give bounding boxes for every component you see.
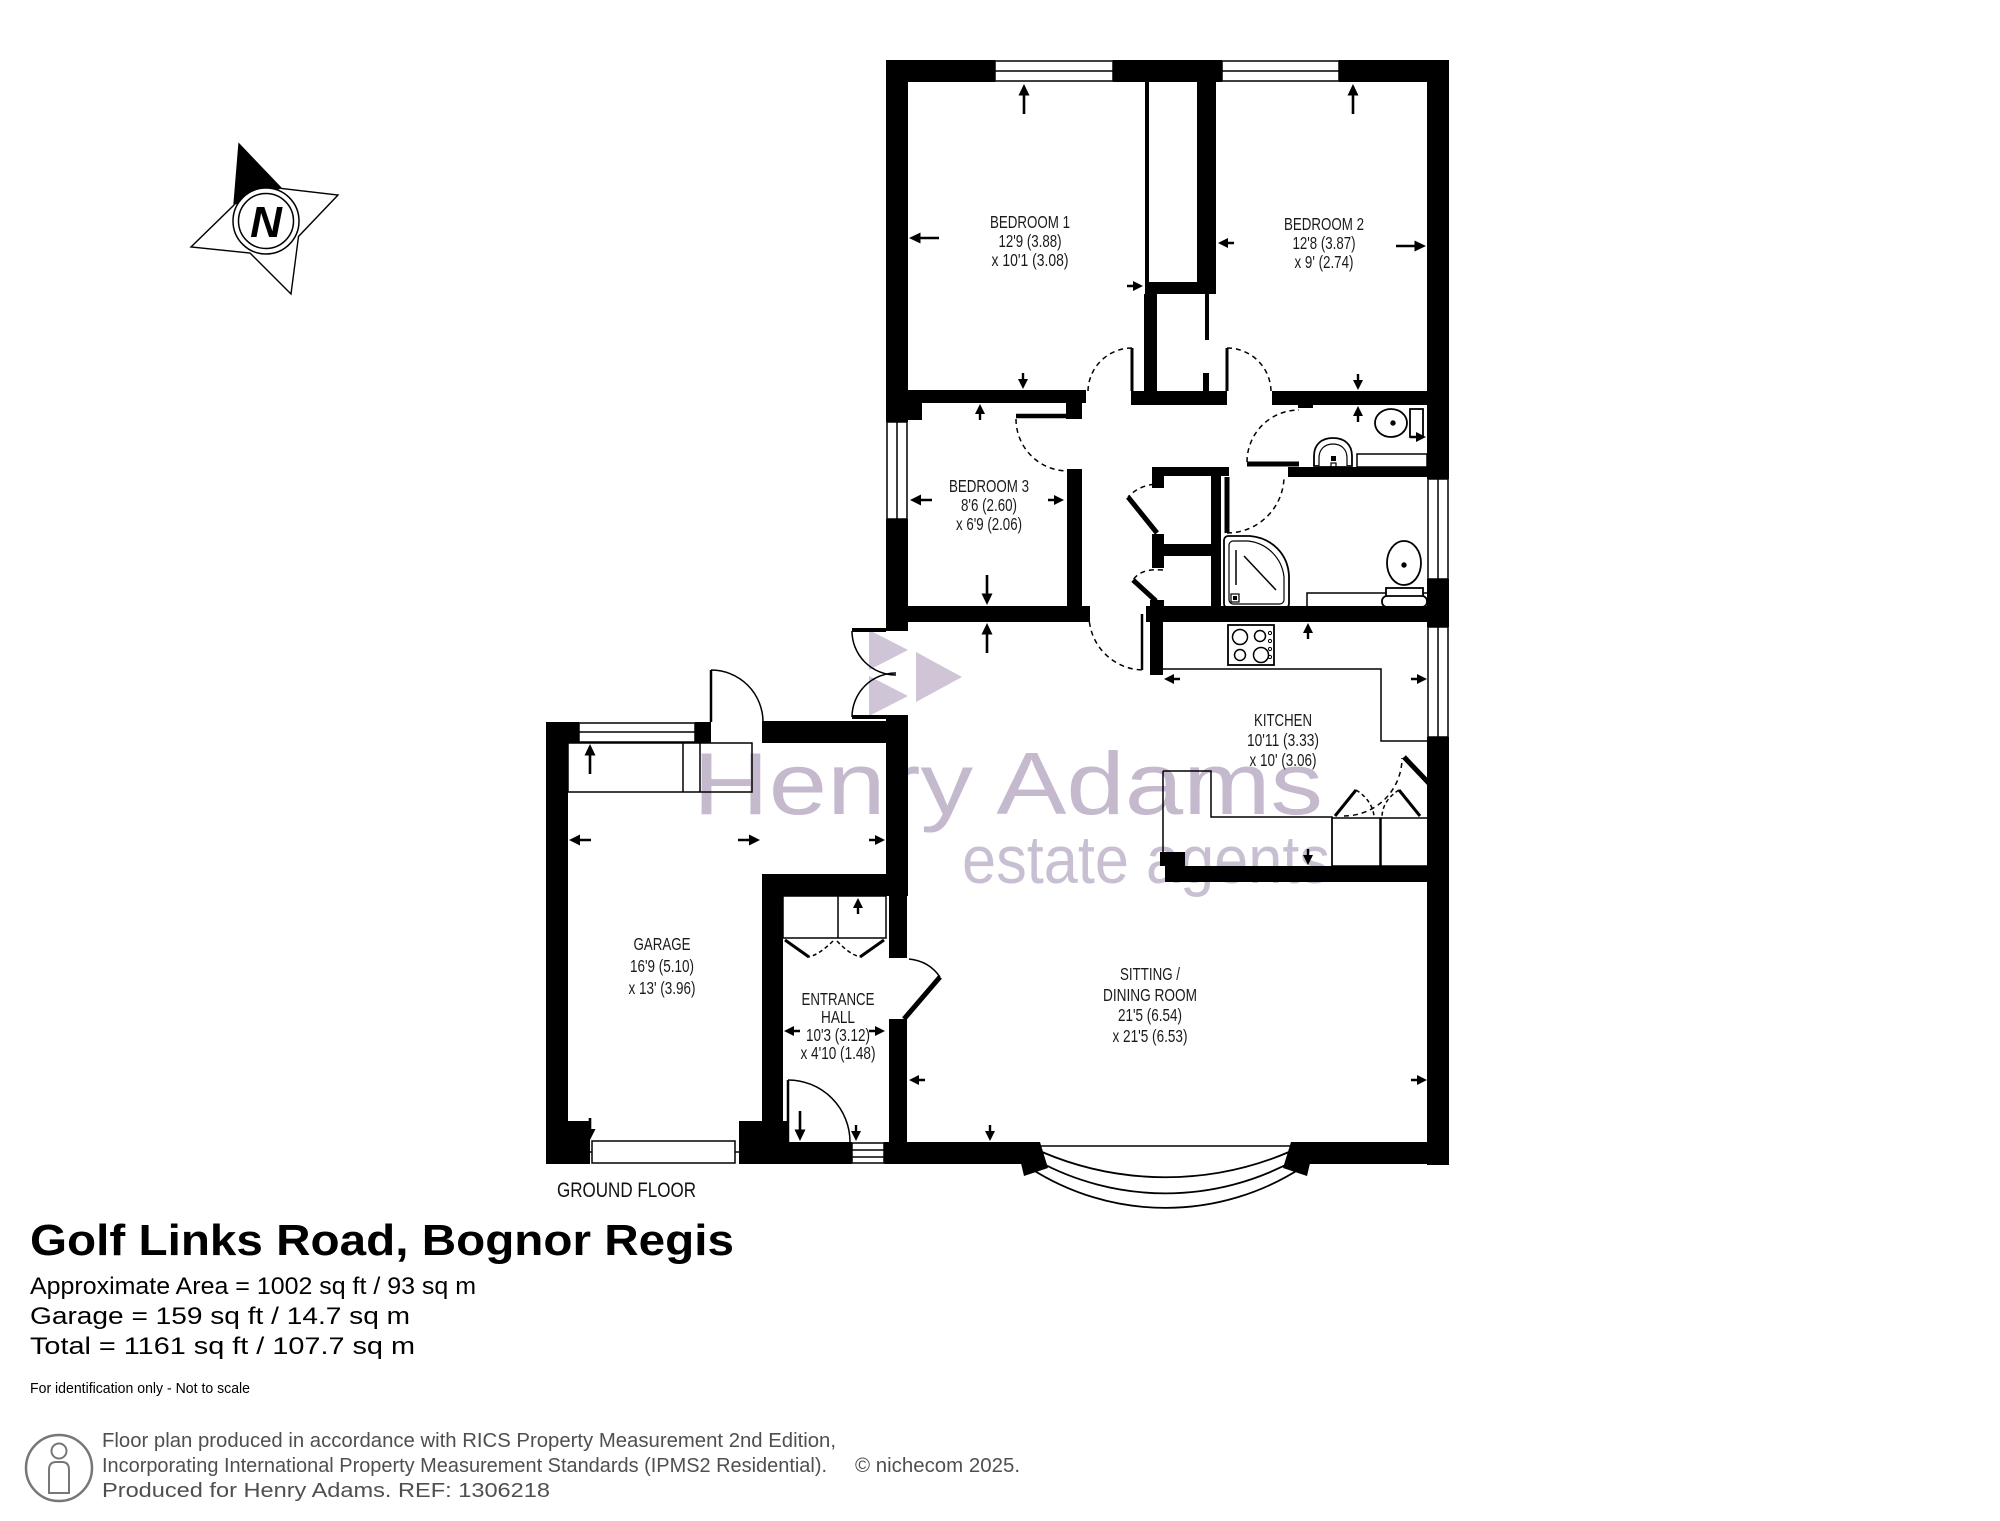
- svg-text:BEDROOM 3: BEDROOM 3: [949, 476, 1029, 496]
- svg-text:SITTING /: SITTING /: [1120, 964, 1180, 984]
- svg-text:16'9 (5.10): 16'9 (5.10): [630, 956, 694, 976]
- svg-text:Henry Adams: Henry Adams: [693, 734, 1323, 833]
- svg-text:For identification only - Not: For identification only - Not to scale: [30, 1381, 250, 1397]
- svg-text:Floor plan produced in accorda: Floor plan produced in accordance with R…: [102, 1430, 836, 1452]
- svg-text:N: N: [250, 198, 283, 247]
- svg-text:GROUND FLOOR: GROUND FLOOR: [557, 1179, 696, 1202]
- svg-text:KITCHEN: KITCHEN: [1254, 710, 1312, 730]
- svg-text:x 9' (2.74): x 9' (2.74): [1295, 252, 1354, 272]
- svg-text:BEDROOM 2: BEDROOM 2: [1284, 214, 1364, 234]
- svg-text:x 4'10 (1.48): x 4'10 (1.48): [801, 1043, 876, 1063]
- svg-text:x 21'5 (6.53): x 21'5 (6.53): [1113, 1026, 1188, 1046]
- svg-text:HALL: HALL: [821, 1007, 855, 1027]
- svg-text:Approximate Area = 1002 sq ft: Approximate Area = 1002 sq ft / 93 sq m: [30, 1273, 476, 1300]
- svg-text:estate agents: estate agents: [962, 822, 1330, 898]
- svg-text:x 13' (3.96): x 13' (3.96): [629, 978, 696, 998]
- svg-text:12'9 (3.88): 12'9 (3.88): [999, 231, 1062, 251]
- svg-text:DINING ROOM: DINING ROOM: [1103, 985, 1197, 1005]
- svg-text:Produced for Henry Adams. RE: Produced for Henry Adams. REF: 1306218: [102, 1480, 550, 1502]
- svg-text:x 10'1 (3.08): x 10'1 (3.08): [992, 250, 1069, 270]
- svg-text:x 6'9 (2.06): x 6'9 (2.06): [956, 514, 1022, 534]
- svg-text:Incorporating International Pr: Incorporating International Property Mea…: [102, 1455, 827, 1477]
- svg-text:BEDROOM 1: BEDROOM 1: [990, 212, 1070, 232]
- svg-text:Garage = 159 sq ft / 14.7 sq m: Garage = 159 sq ft / 14.7 sq m: [30, 1303, 410, 1330]
- svg-text:ENTRANCE: ENTRANCE: [802, 989, 875, 1009]
- svg-text:© nichecom 2025.: © nichecom 2025.: [855, 1455, 1020, 1477]
- svg-text:12'8 (3.87): 12'8 (3.87): [1293, 233, 1356, 253]
- svg-text:10'11 (3.33): 10'11 (3.33): [1247, 730, 1319, 750]
- svg-text:GARAGE: GARAGE: [634, 934, 691, 954]
- svg-text:21'5 (6.54): 21'5 (6.54): [1118, 1005, 1182, 1025]
- svg-text:8'6 (2.60): 8'6 (2.60): [961, 495, 1017, 515]
- svg-text:10'3 (3.12): 10'3 (3.12): [806, 1025, 870, 1045]
- svg-text:Golf Links Road, Bognor Regis: Golf Links Road, Bognor Regis: [30, 1216, 734, 1265]
- svg-text:x 10' (3.06): x 10' (3.06): [1250, 750, 1317, 770]
- svg-text:Total = 1161 sq ft / 107.7 sq: Total = 1161 sq ft / 107.7 sq m: [30, 1333, 415, 1360]
